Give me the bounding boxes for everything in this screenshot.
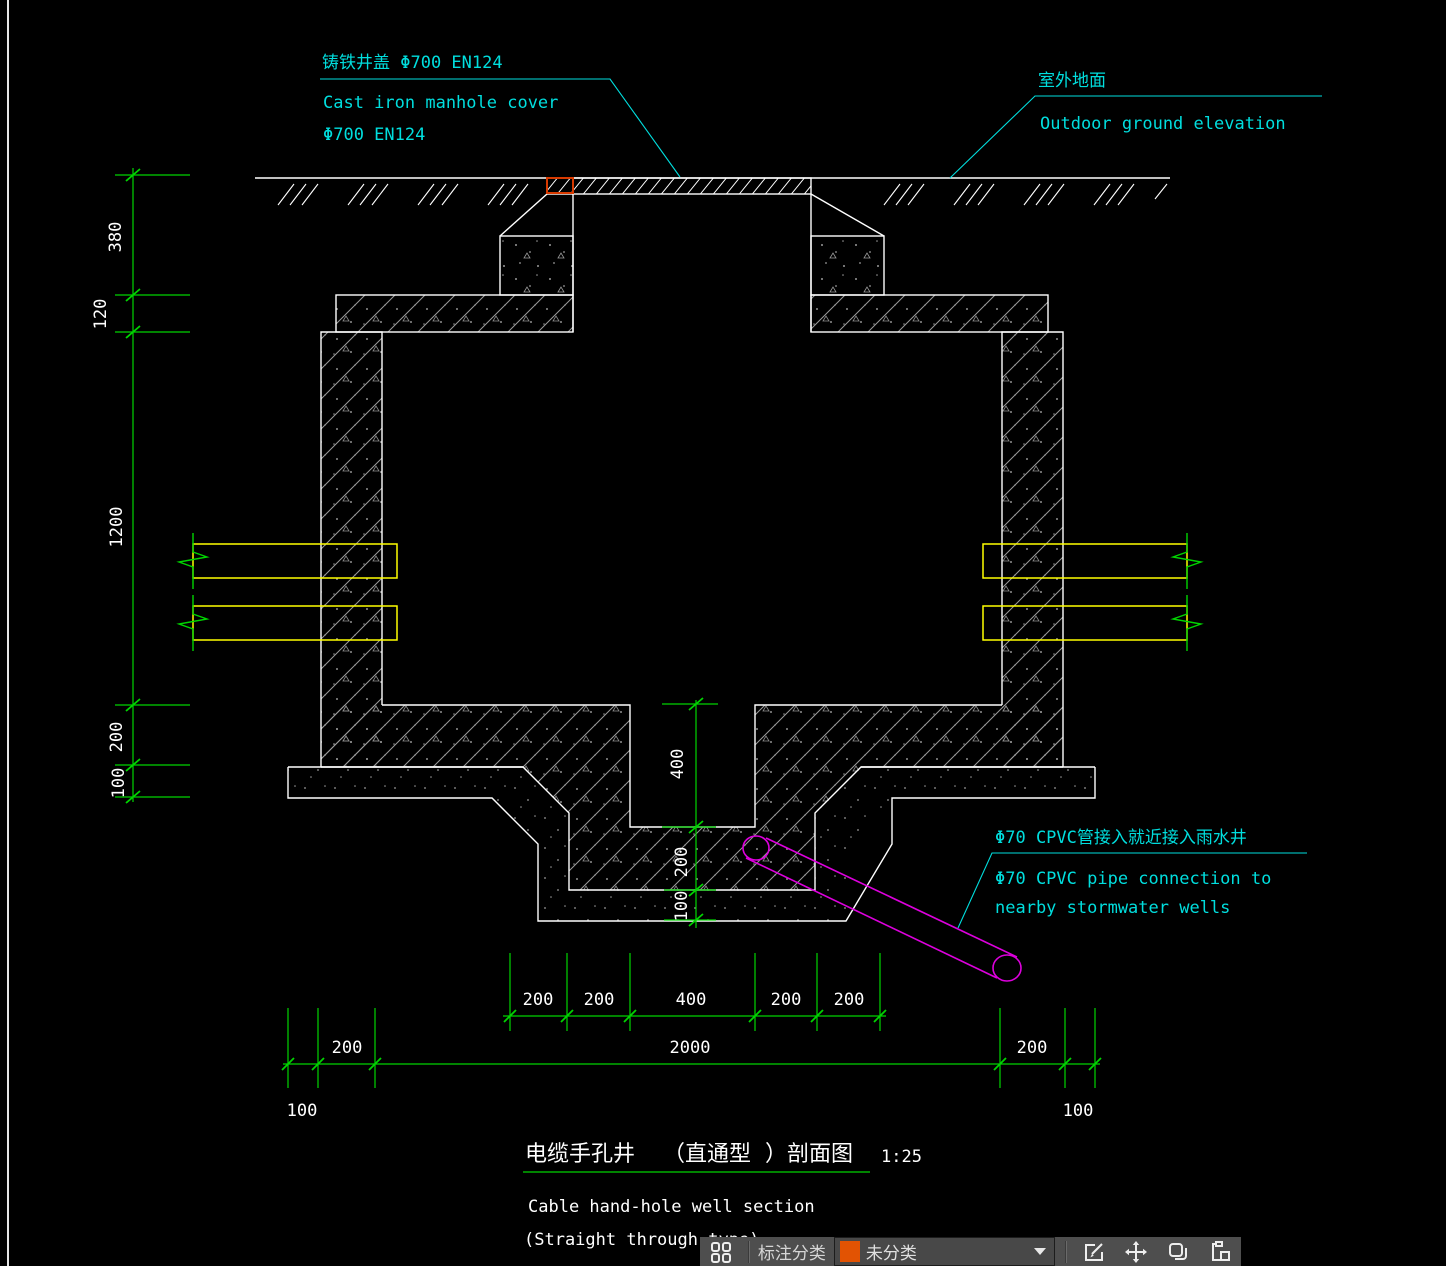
neck-slopes [500, 194, 884, 236]
dim-label: 120 [91, 299, 111, 330]
wall-outlines [321, 332, 1063, 767]
wall-left-fill [321, 332, 382, 767]
neck-walls [573, 194, 811, 332]
category-dropdown[interactable]: 未分类 [834, 1237, 1055, 1266]
title-cn-name: 电缆手孔井 [525, 1142, 635, 1167]
paste-icon[interactable] [1208, 1240, 1232, 1264]
cover-label-cn: 铸铁井盖 Φ700 EN124 [322, 53, 503, 73]
dim-label: 200 [584, 990, 615, 1010]
dim-label: 200 [771, 990, 802, 1010]
dim-label: 2000 [670, 1038, 711, 1058]
annotation-toolbar: 标注分类 未分类 [700, 1237, 1241, 1266]
dim-label: 100 [287, 1101, 318, 1121]
ground-hatch-left [278, 184, 528, 205]
dim-label: 200 [523, 990, 554, 1010]
ground-label-cn: 室外地面 [1038, 71, 1106, 91]
top-slab-left-fill [336, 295, 573, 332]
copy-icon[interactable] [1166, 1240, 1190, 1264]
cover-label-en2: Φ700 EN124 [323, 125, 425, 145]
dim-label: 100 [109, 768, 129, 799]
dim-label: 200 [834, 990, 865, 1010]
chevron-down-icon [1034, 1248, 1046, 1255]
dim-label: 100 [672, 891, 692, 922]
dim-label: 1200 [107, 507, 127, 548]
dim-label: 100 [1063, 1101, 1094, 1121]
cover-label-en1: Cast iron manhole cover [323, 93, 558, 113]
cpvc-pipe-outlet [993, 955, 1021, 981]
title-cn-type: （直通型 [663, 1142, 751, 1167]
drawing-title: 电缆手孔井 （直通型 ）剖面图 1:25 Cable hand-hole wel… [524, 1142, 922, 1250]
title-cn-suffix: ）剖面图 [765, 1142, 853, 1167]
grid-icon[interactable] [709, 1240, 733, 1264]
cpvc-label-en2: nearby stormwater wells [995, 898, 1230, 918]
leader-ground [950, 96, 1322, 178]
dim-label: 400 [676, 990, 707, 1010]
toolbar-divider [1065, 1241, 1067, 1263]
wall-right-fill [1002, 332, 1063, 767]
category-label: 标注分类 [758, 1239, 826, 1264]
dim-left-extensions [115, 175, 190, 797]
dim-label: 400 [668, 749, 688, 780]
cpvc-label-cn: Φ70 CPVC管接入就近接入雨水井 [995, 828, 1247, 848]
well-structure-fills [288, 178, 1095, 921]
cad-canvas[interactable]: 铸铁井盖 Φ700 EN124 Cast iron manhole cover … [0, 0, 1446, 1266]
title-en-line1: Cable hand-hole well section [528, 1197, 815, 1217]
dim-label: 200 [672, 847, 692, 878]
dimension-labels: 380 120 1200 200 100 400 200 100 200 200… [91, 222, 1093, 1121]
ground-hatch-right [884, 184, 1167, 205]
move-icon[interactable] [1124, 1240, 1148, 1264]
edit-icon[interactable] [1082, 1240, 1106, 1264]
cpvc-label-en1: Φ70 CPVC pipe connection to [995, 869, 1271, 889]
color-swatch [840, 1241, 860, 1262]
seat-block-left-fill [500, 236, 573, 295]
title-scale: 1:25 [881, 1147, 922, 1167]
dim-label: 200 [107, 722, 127, 753]
ground-label-en: Outdoor ground elevation [1040, 114, 1286, 134]
cad-app-window: 铸铁井盖 Φ700 EN124 Cast iron manhole cover … [0, 0, 1446, 1266]
toolbar-divider [748, 1241, 750, 1263]
seat-block-right-fill [811, 236, 884, 295]
dim-label: 200 [332, 1038, 363, 1058]
dropdown-value: 未分类 [866, 1239, 1034, 1264]
dim-label: 380 [106, 222, 126, 253]
manhole-cover-hatch [547, 178, 811, 194]
top-slab-right-fill [811, 295, 1048, 332]
dim-label: 200 [1017, 1038, 1048, 1058]
